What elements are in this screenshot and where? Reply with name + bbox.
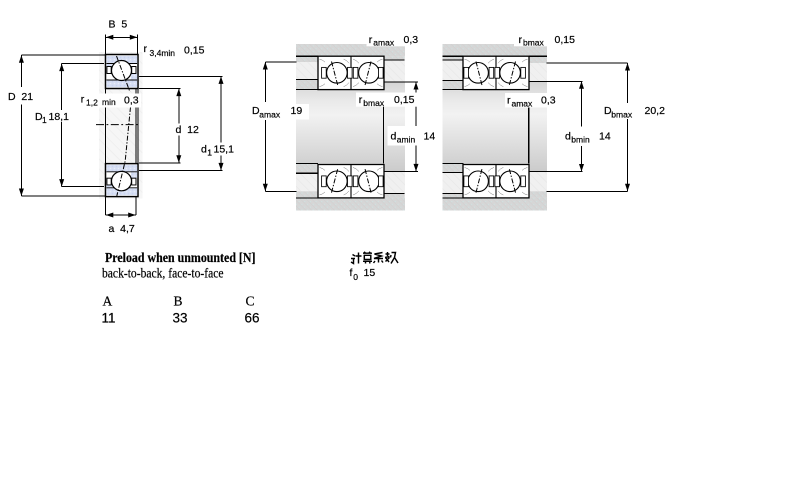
svg-text:r: r <box>144 43 148 55</box>
svg-text:C: C <box>246 294 255 309</box>
svg-text:amax: amax <box>373 38 395 48</box>
svg-text:66: 66 <box>245 310 260 325</box>
svg-text:20,2: 20,2 <box>645 105 666 117</box>
svg-text:0,3: 0,3 <box>124 94 139 106</box>
svg-text:f: f <box>350 267 353 279</box>
svg-text:18,1: 18,1 <box>49 111 70 123</box>
svg-text:amax: amax <box>512 98 534 108</box>
svg-text:r: r <box>369 34 373 46</box>
svg-text:3,4min: 3,4min <box>150 48 176 58</box>
svg-text:0,15: 0,15 <box>394 94 415 106</box>
svg-text:15: 15 <box>364 267 376 279</box>
svg-text:B 5: B 5 <box>109 19 128 31</box>
svg-text:a 4,7: a 4,7 <box>109 223 135 235</box>
svg-text:bmax: bmax <box>363 98 385 108</box>
svg-text:A: A <box>103 294 113 309</box>
svg-text:Preload when unmounted [N]: Preload when unmounted [N] <box>105 250 256 265</box>
svg-text:1: 1 <box>207 147 212 157</box>
svg-text:bmax: bmax <box>523 38 545 48</box>
svg-text:33: 33 <box>173 310 188 325</box>
svg-text:0,15: 0,15 <box>184 45 205 57</box>
svg-text:d: d <box>565 130 571 142</box>
svg-text:19: 19 <box>291 105 303 117</box>
svg-text:r: r <box>519 34 523 46</box>
svg-text:1: 1 <box>42 115 47 125</box>
svg-text:1,2: 1,2 <box>86 98 98 108</box>
svg-text:amin: amin <box>397 134 416 144</box>
svg-text:d: d <box>201 144 207 156</box>
svg-text:amax: amax <box>259 109 281 119</box>
svg-text:d: d <box>391 130 397 142</box>
svg-text:14: 14 <box>424 130 436 142</box>
svg-text:0: 0 <box>353 272 358 282</box>
svg-text:11: 11 <box>102 310 116 325</box>
svg-text:bmax: bmax <box>611 109 633 119</box>
svg-text:r: r <box>81 93 85 105</box>
svg-text:min: min <box>102 97 116 107</box>
svg-text:0,3: 0,3 <box>541 95 556 107</box>
svg-text:back-to-back, face-to-face: back-to-back, face-to-face <box>102 266 224 281</box>
svg-text:r: r <box>359 94 363 106</box>
svg-text:B: B <box>174 294 183 309</box>
svg-text:0,3: 0,3 <box>404 34 419 46</box>
svg-text:bmin: bmin <box>571 134 590 144</box>
svg-text:14: 14 <box>599 130 611 142</box>
svg-text:15,1: 15,1 <box>214 144 235 156</box>
svg-text:d 12: d 12 <box>176 124 200 136</box>
svg-text:0,15: 0,15 <box>555 34 576 46</box>
svg-text:r: r <box>507 95 511 107</box>
svg-text:D 21: D 21 <box>8 91 33 103</box>
